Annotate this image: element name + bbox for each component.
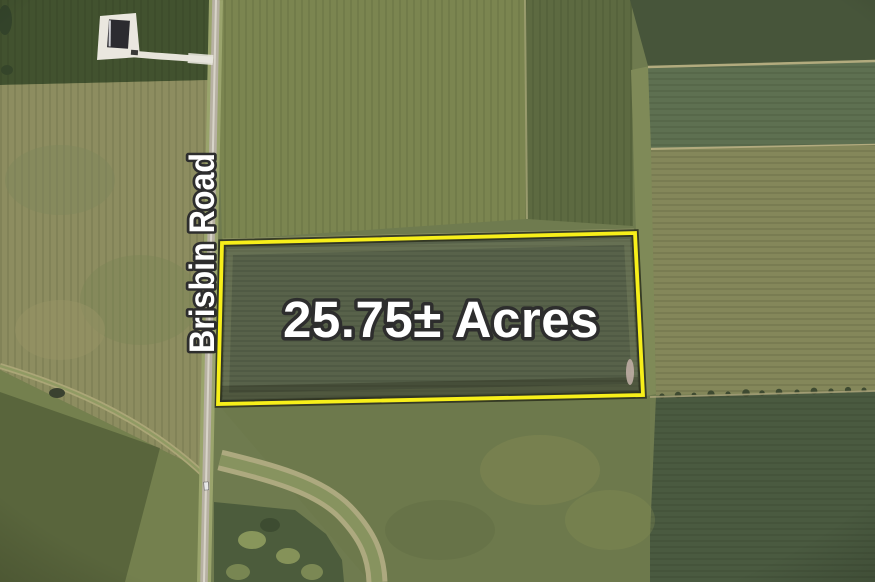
aerial-parcel-map: Brisbin Road 25.75± Acres (0, 0, 875, 582)
road-label: Brisbin Road (183, 153, 222, 353)
map-graphic: Brisbin Road 25.75± Acres (0, 0, 875, 582)
acreage-label: 25.75± Acres (283, 291, 599, 348)
